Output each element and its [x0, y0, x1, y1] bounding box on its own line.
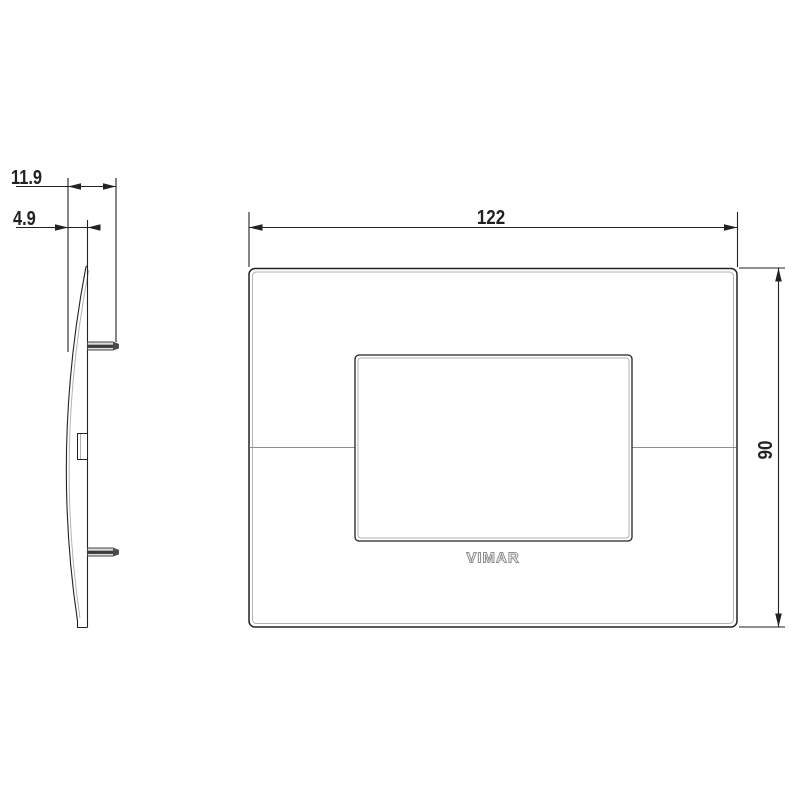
arrowhead-width-right	[724, 224, 738, 231]
dim-label-plate-depth: 4.9	[13, 209, 36, 229]
arrowhead-total-depth-left	[68, 183, 81, 189]
dim-label-height: 90	[756, 441, 776, 460]
module-window-outline	[355, 355, 632, 541]
arrowhead-height-top	[775, 268, 782, 282]
arrowhead-height-bottom	[775, 614, 782, 628]
side-view	[16, 178, 119, 628]
arrowhead-width-left	[249, 224, 263, 231]
center-notch	[78, 434, 88, 460]
arrowhead-total-depth-right	[103, 183, 116, 189]
clip-top-stripe	[88, 345, 114, 348]
arrowhead-plate-depth-right	[88, 224, 101, 230]
brand-logo-text: VIMAR	[466, 550, 519, 567]
arrowhead-plate-depth-left	[55, 224, 68, 230]
clip-bottom-stripe	[88, 551, 114, 554]
dim-label-total-depth: 11.9	[11, 168, 42, 188]
mounting-clip-top	[88, 342, 119, 350]
dim-label-width: 122	[477, 208, 505, 228]
mounting-clip-bottom	[88, 548, 119, 556]
technical-drawing	[0, 0, 800, 800]
drawing-canvas: 11.9 4.9 122 90 VIMAR	[0, 0, 800, 800]
